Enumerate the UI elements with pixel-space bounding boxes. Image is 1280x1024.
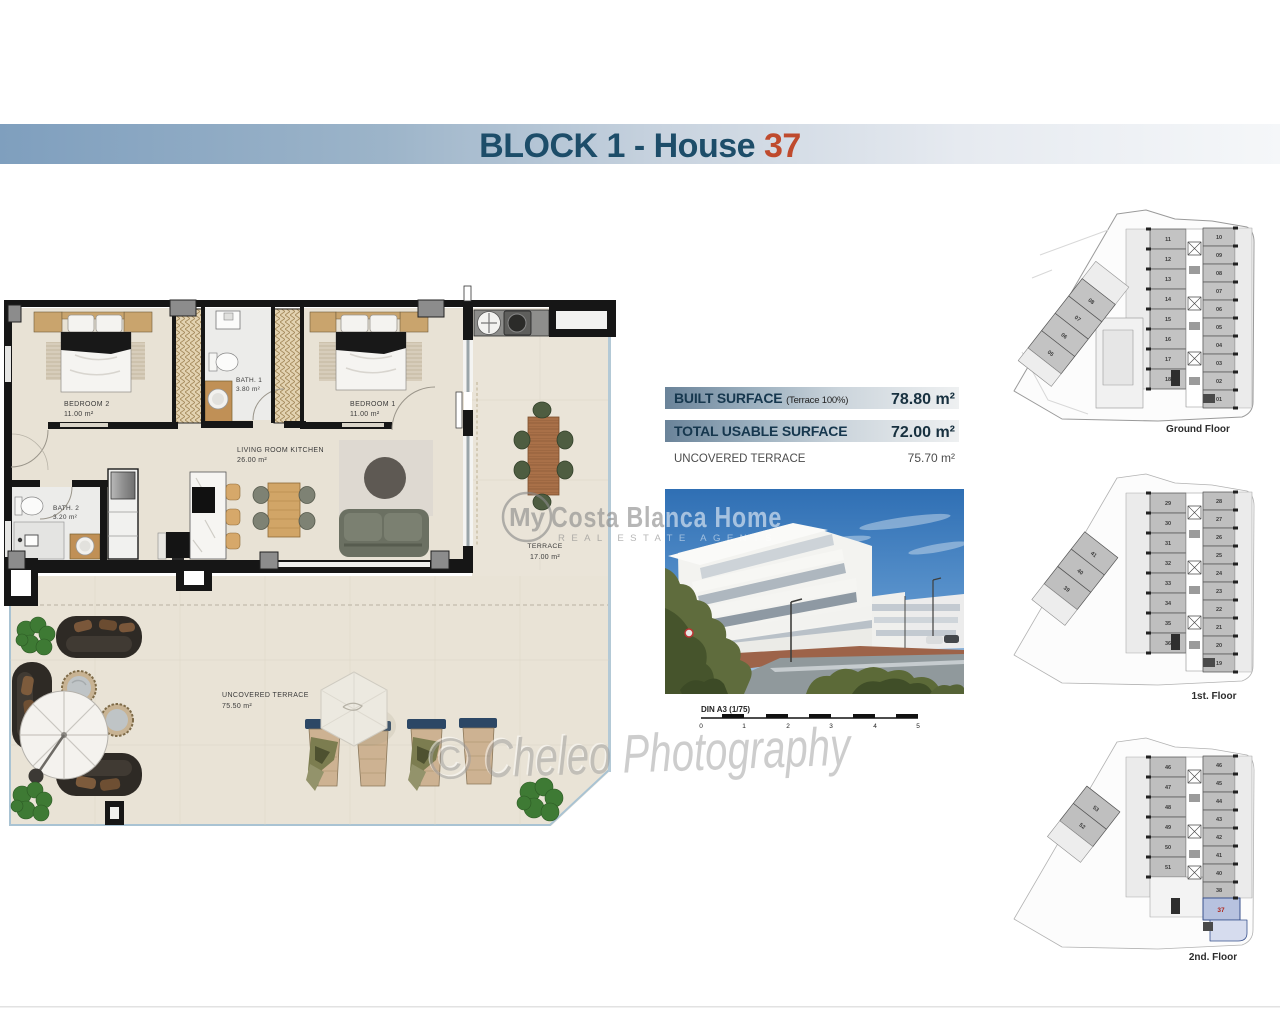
svg-text:11.00 m²: 11.00 m²	[64, 411, 94, 418]
svg-text:35: 35	[1165, 621, 1171, 627]
svg-text:TERRACE: TERRACE	[527, 543, 562, 550]
svg-text:17: 17	[1165, 357, 1171, 363]
svg-text:UNCOVERED TERRACE: UNCOVERED TERRACE	[674, 453, 806, 465]
svg-text:Ground Floor: Ground Floor	[1166, 424, 1230, 435]
svg-text:28: 28	[1216, 499, 1222, 505]
svg-text:04: 04	[1216, 343, 1223, 349]
svg-text:16: 16	[1165, 337, 1171, 343]
svg-text:17.00 m²: 17.00 m²	[530, 554, 560, 561]
svg-text:75.50 m²: 75.50 m²	[222, 703, 252, 710]
svg-text:13: 13	[1165, 277, 1171, 283]
svg-text:30: 30	[1165, 521, 1171, 527]
svg-text:20: 20	[1216, 643, 1222, 649]
svg-text:75.70 m²: 75.70 m²	[908, 451, 955, 465]
svg-text:01: 01	[1216, 397, 1222, 403]
svg-text:BATH. 1: BATH. 1	[236, 377, 262, 384]
svg-text:12: 12	[1165, 257, 1171, 263]
svg-text:32: 32	[1165, 561, 1171, 567]
svg-text:43: 43	[1216, 817, 1222, 823]
svg-text:49: 49	[1165, 825, 1171, 831]
svg-text:5: 5	[916, 723, 920, 730]
svg-text:My: My	[509, 502, 546, 532]
svg-text:3.20 m²: 3.20 m²	[53, 514, 78, 521]
svg-text:25: 25	[1216, 553, 1222, 559]
svg-text:23: 23	[1216, 589, 1222, 595]
svg-text:34: 34	[1165, 601, 1172, 607]
svg-text:1st. Floor: 1st. Floor	[1191, 691, 1236, 702]
svg-text:2nd. Floor: 2nd. Floor	[1189, 952, 1237, 963]
svg-text:09: 09	[1216, 253, 1222, 259]
svg-text:05: 05	[1216, 325, 1222, 331]
svg-text:26.00 m²: 26.00 m²	[237, 457, 267, 464]
svg-text:46: 46	[1216, 763, 1222, 769]
svg-text:40: 40	[1216, 871, 1222, 877]
svg-text:TOTAL USABLE SURFACE: TOTAL USABLE SURFACE	[674, 423, 847, 439]
svg-text:21: 21	[1216, 625, 1222, 631]
svg-text:DIN A3 (1/75): DIN A3 (1/75)	[701, 705, 750, 714]
svg-text:50: 50	[1165, 845, 1171, 851]
svg-text:47: 47	[1165, 785, 1171, 791]
svg-text:33: 33	[1165, 581, 1171, 587]
svg-text:UNCOVERED TERRACE: UNCOVERED TERRACE	[222, 692, 309, 699]
svg-text:46: 46	[1165, 765, 1171, 771]
svg-text:72.00 m²: 72.00 m²	[891, 424, 955, 441]
svg-text:48: 48	[1165, 805, 1171, 811]
svg-text:BATH. 2: BATH. 2	[53, 505, 79, 512]
svg-text:31: 31	[1165, 541, 1171, 547]
svg-text:BEDROOM 2: BEDROOM 2	[64, 401, 110, 408]
svg-text:03: 03	[1216, 361, 1222, 367]
svg-text:14: 14	[1165, 297, 1172, 303]
svg-text:10: 10	[1216, 235, 1222, 241]
svg-text:26: 26	[1216, 535, 1222, 541]
svg-text:27: 27	[1216, 517, 1222, 523]
svg-text:37: 37	[1217, 907, 1225, 914]
svg-text:3.80 m²: 3.80 m²	[236, 386, 261, 393]
svg-text:24: 24	[1216, 571, 1223, 577]
svg-text:51: 51	[1165, 865, 1171, 871]
svg-text:42: 42	[1216, 835, 1222, 841]
svg-text:18: 18	[1165, 377, 1171, 383]
svg-text:4: 4	[873, 723, 877, 730]
svg-text:08: 08	[1216, 271, 1222, 277]
svg-text:Cheleo Photography: Cheleo Photography	[483, 717, 853, 790]
svg-text:45: 45	[1216, 781, 1222, 787]
svg-text:06: 06	[1216, 307, 1222, 313]
svg-text:22: 22	[1216, 607, 1222, 613]
svg-text:02: 02	[1216, 379, 1222, 385]
svg-text:©: ©	[427, 726, 472, 792]
svg-text:41: 41	[1216, 853, 1222, 859]
svg-text:11: 11	[1165, 237, 1171, 243]
svg-text:44: 44	[1216, 799, 1223, 805]
svg-text:78.80 m²: 78.80 m²	[891, 391, 955, 408]
svg-text:19: 19	[1216, 661, 1222, 667]
svg-text:LIVING ROOM KITCHEN: LIVING ROOM KITCHEN	[237, 447, 324, 454]
svg-text:29: 29	[1165, 501, 1171, 507]
svg-text:07: 07	[1216, 289, 1222, 295]
svg-text:36: 36	[1165, 641, 1171, 647]
svg-text:BEDROOM 1: BEDROOM 1	[350, 401, 396, 408]
svg-text:15: 15	[1165, 317, 1171, 323]
svg-text:38: 38	[1216, 888, 1222, 894]
svg-text:BLOCK 1 - House 37: BLOCK 1 - House 37	[479, 127, 801, 165]
svg-text:11.00 m²: 11.00 m²	[350, 411, 380, 418]
